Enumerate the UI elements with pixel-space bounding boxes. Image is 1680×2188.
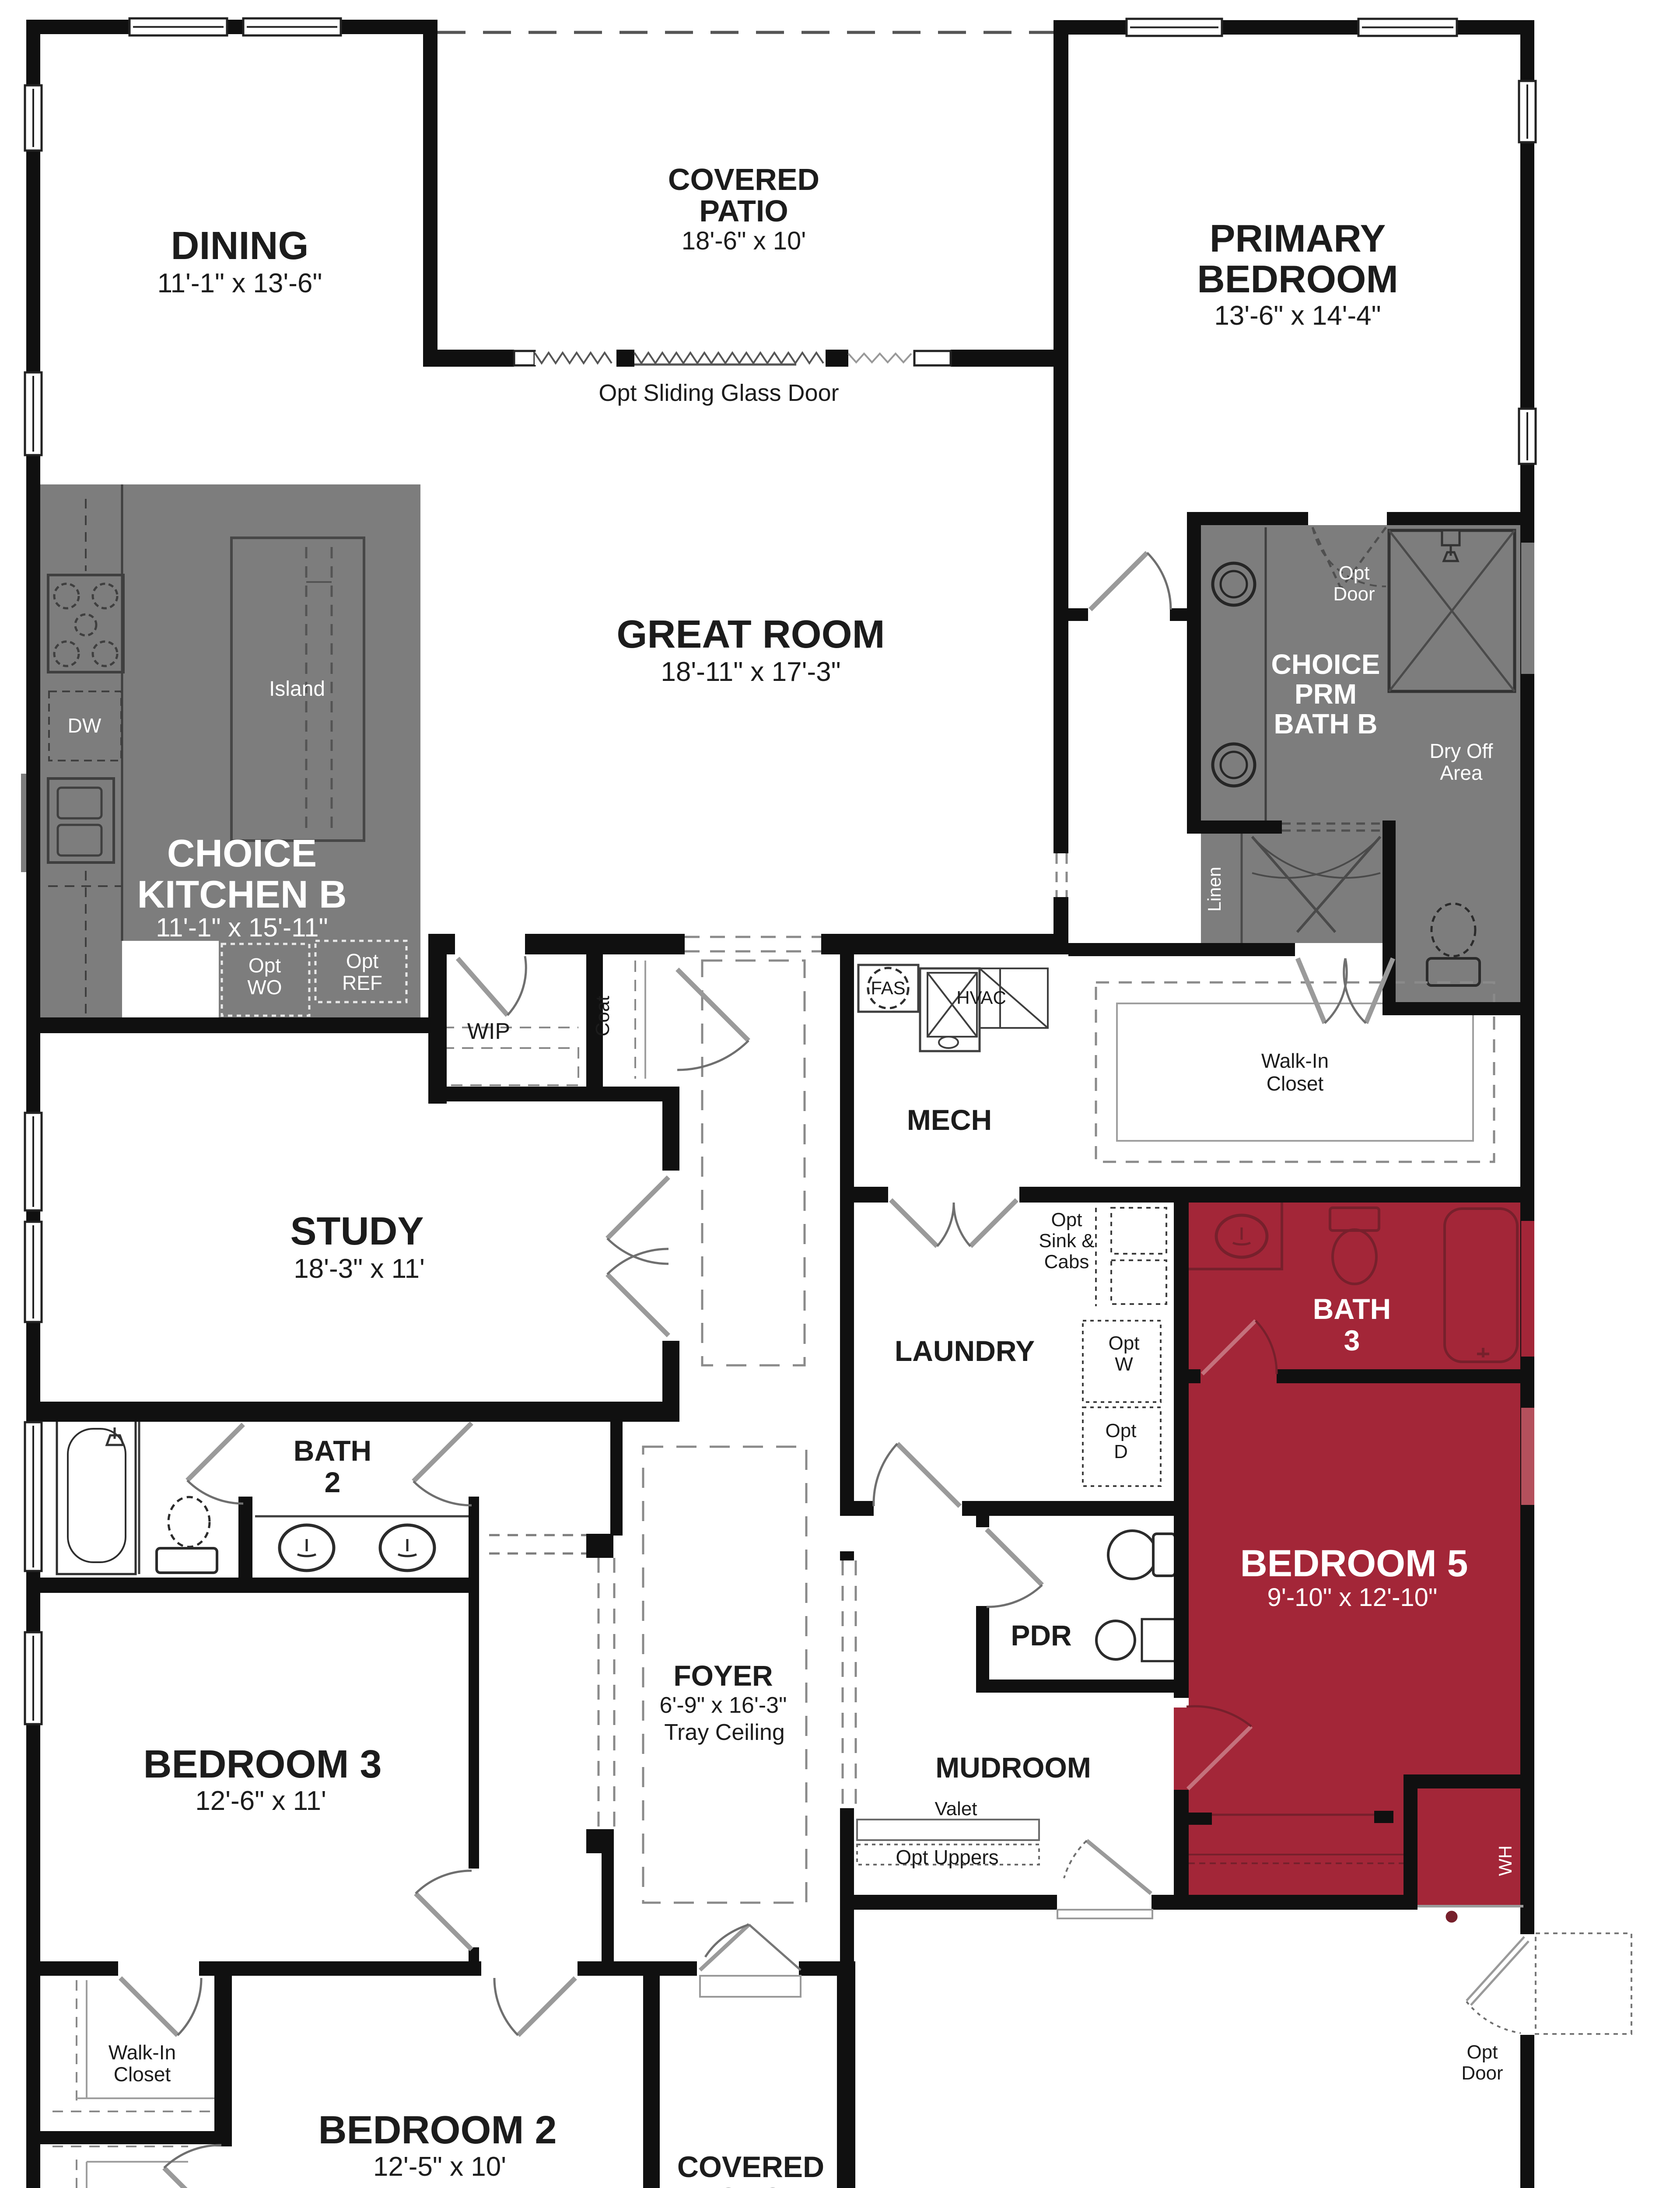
svg-text:D: D xyxy=(1114,1441,1128,1462)
svg-text:3: 3 xyxy=(1344,1324,1360,1357)
svg-text:WH: WH xyxy=(1495,1845,1515,1876)
svg-text:2: 2 xyxy=(325,1466,341,1498)
svg-text:COVERED: COVERED xyxy=(677,2150,824,2184)
svg-text:18'-3" x 11': 18'-3" x 11' xyxy=(294,1254,425,1284)
svg-text:W: W xyxy=(1115,1353,1133,1375)
svg-text:Tray Ceiling: Tray Ceiling xyxy=(664,1720,785,1745)
svg-text:Opt Uppers: Opt Uppers xyxy=(896,1846,998,1869)
svg-text:Coat: Coat xyxy=(592,996,613,1037)
svg-text:18'-11" x 17'-3": 18'-11" x 17'-3" xyxy=(661,657,840,687)
svg-text:BEDROOM 3: BEDROOM 3 xyxy=(143,1743,381,1786)
svg-text:PRIMARY: PRIMARY xyxy=(1210,217,1386,260)
svg-text:DINING: DINING xyxy=(171,224,309,268)
svg-text:11'-1" x 13'-6": 11'-1" x 13'-6" xyxy=(157,268,322,298)
svg-text:Linen: Linen xyxy=(1204,867,1225,912)
svg-text:Island: Island xyxy=(269,677,325,701)
svg-text:BEDROOM: BEDROOM xyxy=(1197,257,1398,301)
svg-text:Sink &: Sink & xyxy=(1039,1230,1094,1252)
svg-text:STUDY: STUDY xyxy=(290,1210,423,1253)
svg-text:Walk-In: Walk-In xyxy=(108,2041,176,2064)
svg-text:FOYER: FOYER xyxy=(673,1659,773,1692)
svg-text:Opt: Opt xyxy=(1339,562,1370,584)
svg-text:REF: REF xyxy=(342,971,382,994)
svg-text:MECH: MECH xyxy=(907,1104,992,1136)
svg-text:Opt: Opt xyxy=(1467,2041,1498,2063)
svg-text:11'-1" x 15'-11": 11'-1" x 15'-11" xyxy=(156,913,328,942)
svg-text:COVERED: COVERED xyxy=(668,162,819,196)
svg-text:12'-6" x 11': 12'-6" x 11' xyxy=(195,1786,326,1816)
svg-text:6'-9" x 16'-3": 6'-9" x 16'-3" xyxy=(660,1693,787,1718)
svg-text:LAUNDRY: LAUNDRY xyxy=(895,1335,1035,1367)
svg-text:Cabs: Cabs xyxy=(1044,1251,1089,1273)
svg-text:Door: Door xyxy=(1461,2062,1503,2084)
svg-text:HVAC: HVAC xyxy=(956,987,1006,1008)
svg-text:Walk-In: Walk-In xyxy=(1261,1049,1329,1072)
svg-text:PATIO: PATIO xyxy=(699,194,788,228)
svg-text:9'-10" x 12'-10": 9'-10" x 12'-10" xyxy=(1267,1583,1438,1612)
svg-text:FAS: FAS xyxy=(871,978,905,998)
svg-text:WO: WO xyxy=(247,976,282,999)
svg-text:Closet: Closet xyxy=(114,2063,171,2086)
svg-text:MUDROOM: MUDROOM xyxy=(935,1751,1091,1784)
svg-text:Opt: Opt xyxy=(346,950,378,972)
svg-text:DW: DW xyxy=(68,714,101,737)
svg-text:BEDROOM 5: BEDROOM 5 xyxy=(1240,1543,1468,1585)
svg-text:BATH B: BATH B xyxy=(1274,708,1378,740)
svg-text:KITCHEN B: KITCHEN B xyxy=(137,873,346,916)
svg-text:Opt: Opt xyxy=(1106,1420,1137,1441)
svg-text:WIP: WIP xyxy=(467,1019,510,1044)
svg-text:Door: Door xyxy=(1333,583,1375,605)
svg-text:BEDROOM 2: BEDROOM 2 xyxy=(318,2108,556,2152)
svg-text:CHOICE: CHOICE xyxy=(1271,649,1380,680)
svg-text:Closet: Closet xyxy=(1267,1072,1324,1095)
svg-text:GREAT ROOM: GREAT ROOM xyxy=(616,613,885,656)
svg-text:PRM: PRM xyxy=(1295,678,1357,710)
svg-text:Opt: Opt xyxy=(1051,1209,1082,1231)
svg-text:Opt Sliding Glass Door: Opt Sliding Glass Door xyxy=(598,380,839,406)
svg-text:PDR: PDR xyxy=(1011,1619,1071,1652)
svg-text:13'-6" x 14'-4": 13'-6" x 14'-4" xyxy=(1214,301,1381,331)
svg-text:Dry Off: Dry Off xyxy=(1430,740,1493,762)
svg-text:18'-6" x 10': 18'-6" x 10' xyxy=(682,227,806,255)
svg-text:Area: Area xyxy=(1440,761,1483,784)
svg-text:Valet: Valet xyxy=(934,1798,977,1820)
svg-text:BATH: BATH xyxy=(1313,1293,1391,1325)
svg-text:Opt: Opt xyxy=(1109,1332,1140,1354)
svg-text:PORCH: PORCH xyxy=(697,2182,805,2188)
svg-text:12'-5" x 10': 12'-5" x 10' xyxy=(373,2152,506,2182)
svg-text:CHOICE: CHOICE xyxy=(167,831,317,875)
svg-text:BATH: BATH xyxy=(294,1434,371,1467)
svg-text:Opt: Opt xyxy=(248,954,281,977)
